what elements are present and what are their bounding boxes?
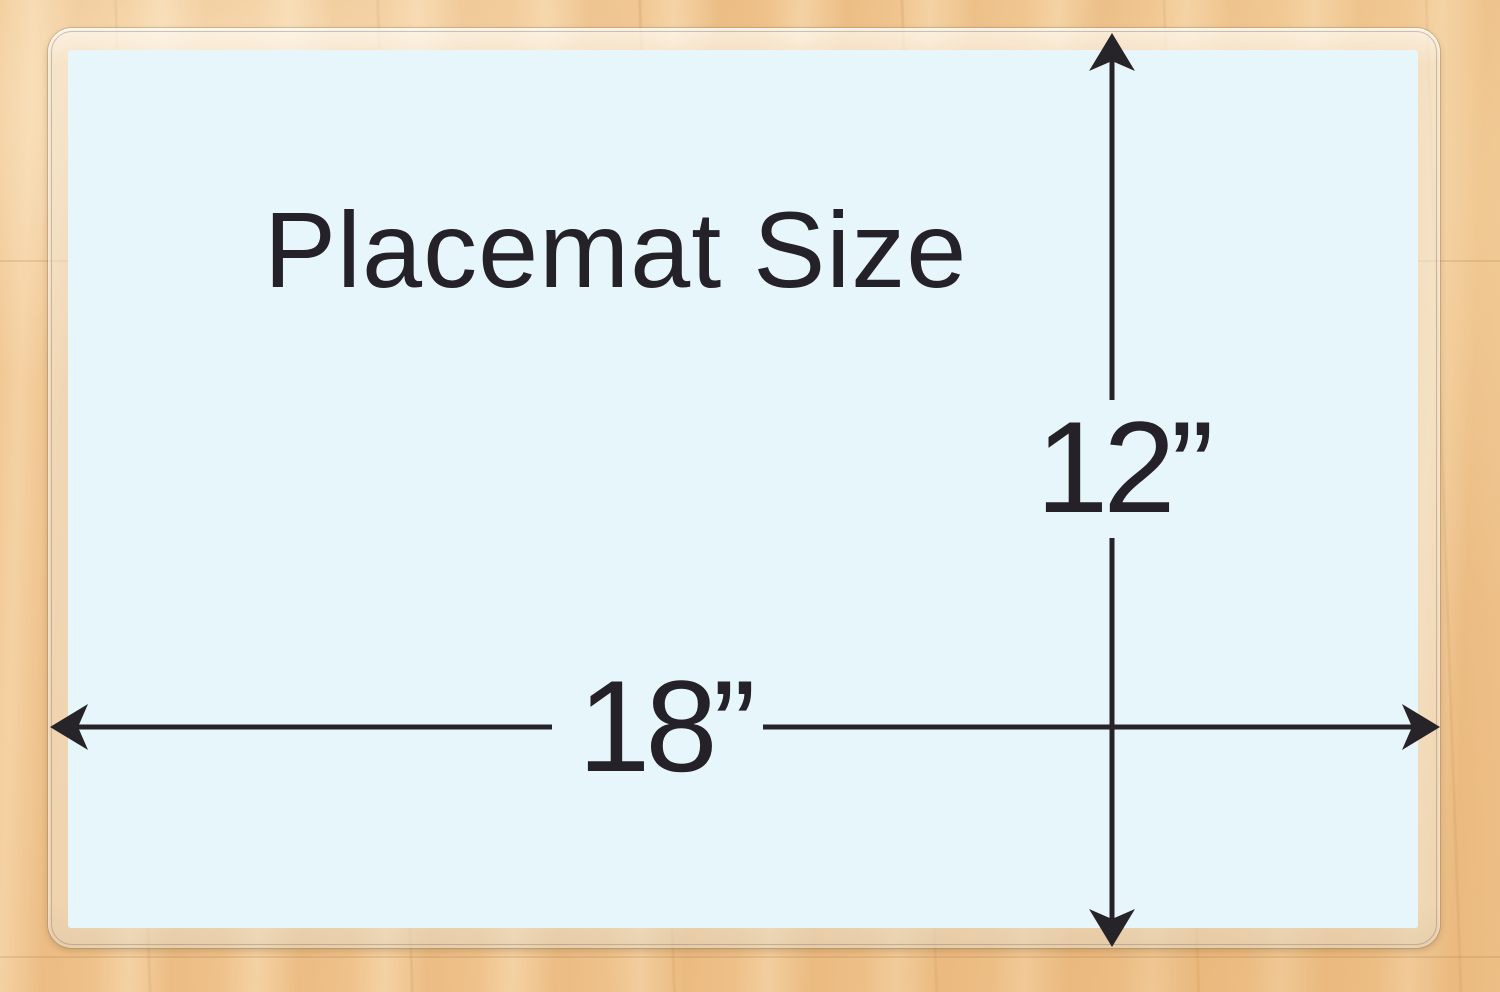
dimension-lines-overlay bbox=[0, 0, 1500, 992]
height-dimension-label: 12” bbox=[1036, 402, 1209, 532]
width-dimension-label: 18” bbox=[578, 661, 751, 791]
placemat-size-diagram: Placemat Size 12” 18” bbox=[0, 0, 1500, 992]
diagram-title: Placemat Size bbox=[264, 196, 967, 304]
